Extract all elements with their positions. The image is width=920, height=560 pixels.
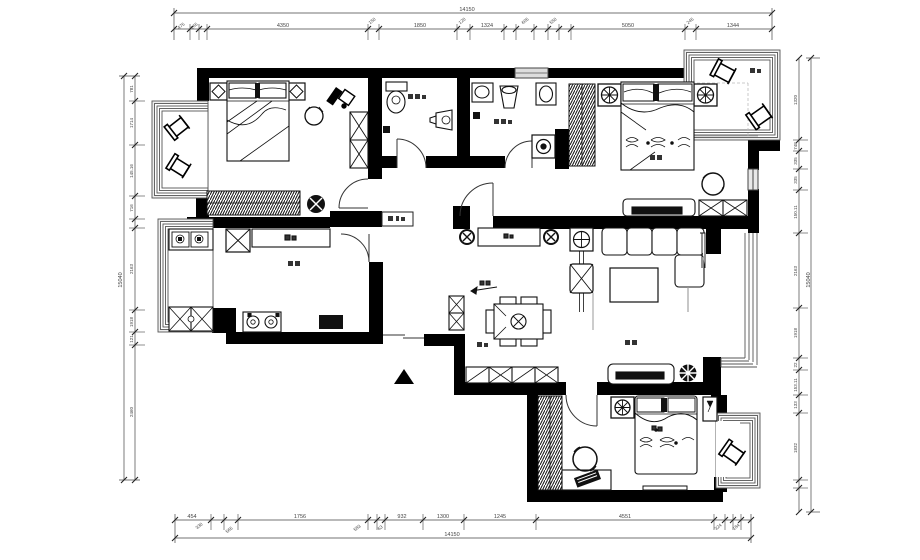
- svg-text:2460: 2460: [129, 406, 134, 417]
- svg-text:14150: 14150: [459, 7, 474, 13]
- svg-text:5050: 5050: [622, 23, 634, 29]
- svg-text:1918: 1918: [793, 327, 798, 338]
- svg-text:1320: 1320: [793, 94, 798, 105]
- svg-text:716: 716: [129, 204, 134, 212]
- svg-text:15040: 15040: [806, 272, 812, 287]
- svg-text:22: 22: [793, 362, 798, 368]
- svg-text:335: 335: [793, 176, 798, 184]
- svg-text:454: 454: [187, 514, 196, 520]
- svg-text:1245: 1245: [494, 514, 506, 520]
- svg-text:2163: 2163: [129, 263, 134, 274]
- svg-text:1344: 1344: [727, 23, 739, 29]
- svg-text:153.11: 153.11: [793, 378, 798, 392]
- svg-text:1300: 1300: [437, 514, 449, 520]
- svg-text:2163: 2163: [793, 265, 798, 276]
- svg-text:15040: 15040: [118, 272, 124, 287]
- svg-text:4551: 4551: [619, 514, 631, 520]
- svg-text:1850: 1850: [414, 23, 426, 29]
- svg-text:121: 121: [129, 335, 134, 343]
- svg-text:1832: 1832: [793, 442, 798, 453]
- svg-text:1324: 1324: [481, 23, 493, 29]
- svg-text:14150: 14150: [444, 532, 459, 538]
- svg-text:1714: 1714: [129, 117, 134, 128]
- svg-text:748: 748: [793, 142, 798, 150]
- svg-text:145.16: 145.16: [129, 164, 134, 178]
- svg-text:781: 781: [129, 85, 134, 93]
- svg-text:133: 133: [793, 401, 798, 409]
- svg-text:932: 932: [397, 514, 406, 520]
- svg-text:335: 335: [793, 157, 798, 165]
- svg-text:4350: 4350: [277, 23, 289, 29]
- svg-text:150.11: 150.11: [793, 205, 798, 219]
- svg-text:1756: 1756: [294, 514, 306, 520]
- svg-text:1918: 1918: [129, 316, 134, 327]
